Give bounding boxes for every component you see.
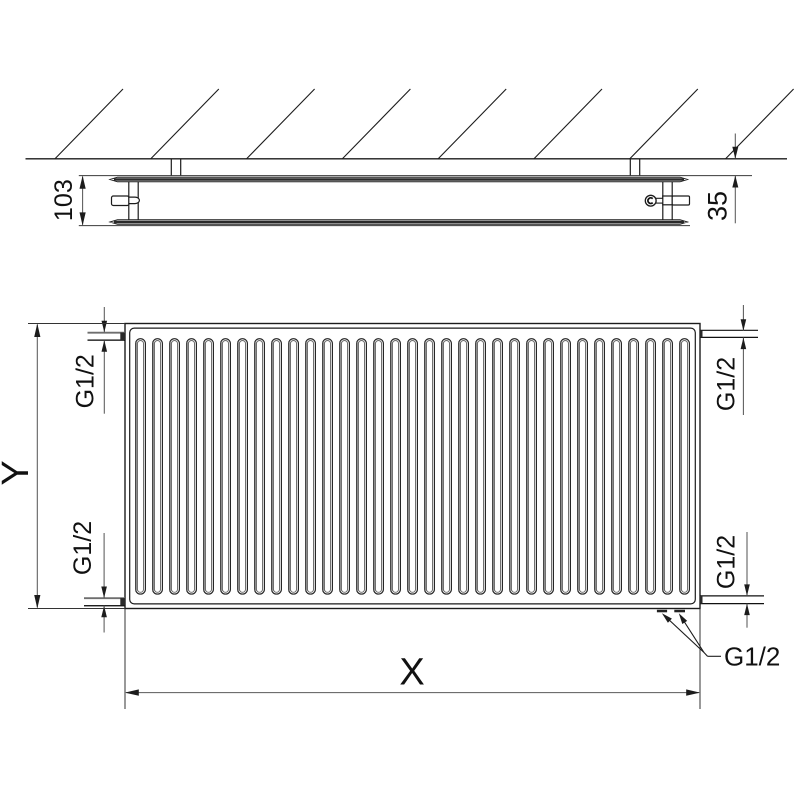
svg-text:G1/2: G1/2: [724, 642, 780, 672]
svg-text:G1/2: G1/2: [713, 357, 741, 411]
svg-text:103: 103: [50, 179, 78, 221]
svg-text:Y: Y: [0, 460, 37, 485]
svg-text:G1/2: G1/2: [69, 521, 97, 575]
svg-text:35: 35: [702, 191, 732, 221]
svg-text:X: X: [399, 652, 424, 694]
svg-text:G1/2: G1/2: [72, 354, 100, 408]
svg-text:G1/2: G1/2: [713, 535, 741, 589]
